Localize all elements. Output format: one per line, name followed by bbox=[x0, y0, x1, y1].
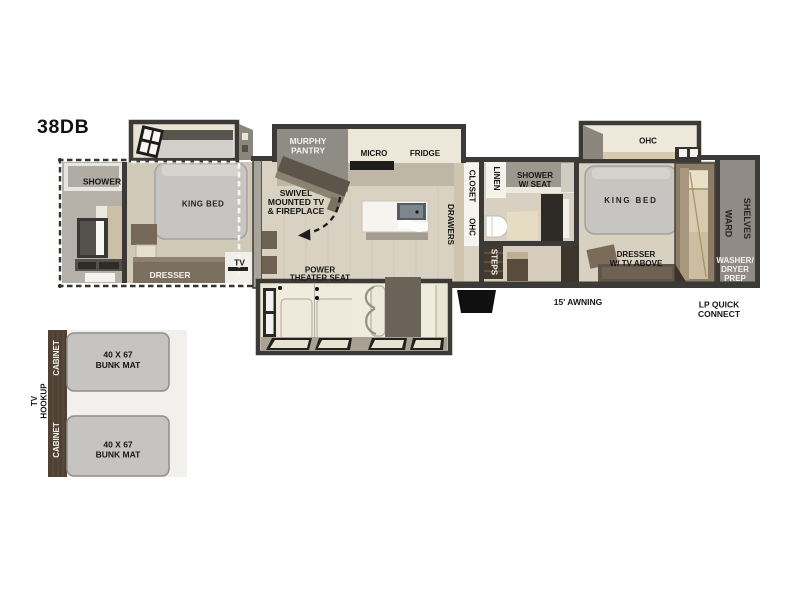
svg-text:BUNK MAT: BUNK MAT bbox=[96, 360, 142, 370]
svg-text:W/ SEAT: W/ SEAT bbox=[519, 180, 552, 189]
svg-text:LINEN: LINEN bbox=[492, 167, 501, 191]
svg-text:WARD: WARD bbox=[724, 210, 734, 238]
svg-text:MURPHY: MURPHY bbox=[290, 136, 327, 146]
svg-text:DRESSER: DRESSER bbox=[149, 270, 190, 280]
svg-text:LP QUICK: LP QUICK bbox=[699, 300, 740, 310]
svg-text:THEATER SEAT: THEATER SEAT bbox=[290, 274, 350, 283]
svg-text:& FIREPLACE: & FIREPLACE bbox=[268, 206, 325, 216]
svg-text:DRYER: DRYER bbox=[721, 265, 749, 274]
svg-text:SHOWER: SHOWER bbox=[517, 171, 553, 180]
svg-text:STEPS: STEPS bbox=[489, 249, 498, 276]
svg-text:CONNECT: CONNECT bbox=[698, 309, 741, 319]
svg-text:SHELVES: SHELVES bbox=[742, 198, 752, 239]
svg-text:PANTRY: PANTRY bbox=[291, 146, 325, 156]
svg-text:40 X 67: 40 X 67 bbox=[103, 440, 133, 450]
svg-text:CLOSET: CLOSET bbox=[467, 170, 476, 203]
svg-text:DRAWERS: DRAWERS bbox=[446, 204, 455, 246]
svg-text:MICRO: MICRO bbox=[361, 149, 388, 158]
svg-text:15' AWNING: 15' AWNING bbox=[554, 297, 603, 307]
svg-text:38DB: 38DB bbox=[37, 116, 89, 138]
svg-text:DRESSER: DRESSER bbox=[617, 250, 656, 259]
svg-text:SHOWER: SHOWER bbox=[83, 177, 121, 187]
svg-text:BUNK MAT: BUNK MAT bbox=[96, 450, 142, 460]
svg-text:KING BED: KING BED bbox=[604, 196, 658, 205]
svg-text:HOOKUP: HOOKUP bbox=[40, 383, 49, 419]
svg-text:W/ TV ABOVE: W/ TV ABOVE bbox=[610, 259, 663, 268]
svg-text:OHC: OHC bbox=[467, 218, 476, 236]
svg-text:OHC: OHC bbox=[639, 137, 657, 146]
svg-text:TV: TV bbox=[30, 395, 39, 406]
svg-text:CABINET: CABINET bbox=[52, 340, 61, 376]
svg-text:40 X 67: 40 X 67 bbox=[103, 350, 133, 360]
svg-text:WASHER/: WASHER/ bbox=[716, 256, 754, 265]
svg-text:CABINET: CABINET bbox=[52, 422, 61, 458]
svg-text:KING BED: KING BED bbox=[182, 200, 224, 209]
svg-text:FRIDGE: FRIDGE bbox=[410, 149, 441, 158]
